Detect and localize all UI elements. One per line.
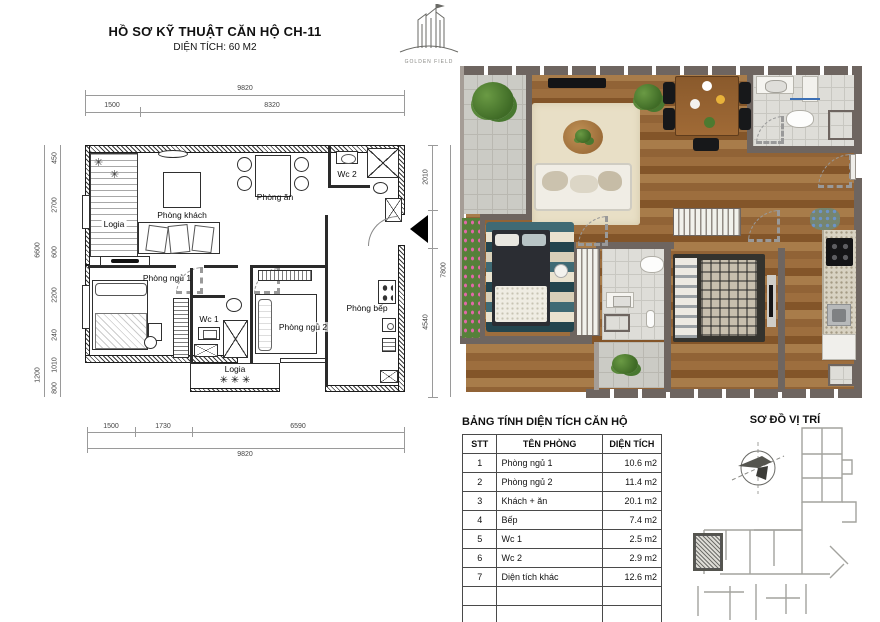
- wall-segment: [398, 245, 405, 392]
- dim-line: [432, 145, 433, 397]
- table-row-empty: [463, 587, 662, 606]
- wall-segment: [325, 385, 405, 392]
- dining-chair: [739, 108, 751, 130]
- wall-segment: [280, 358, 328, 363]
- dim-label: 1010: [52, 357, 59, 373]
- brand-name: GOLDEN FIELD: [396, 59, 462, 65]
- cell-stt: 5: [463, 530, 497, 549]
- cell-area: 20.1 m2: [602, 492, 661, 511]
- dining-chair: [663, 82, 675, 104]
- dim-label: 8320: [264, 102, 280, 109]
- dining-chair: [237, 157, 252, 172]
- dim-tick: [135, 427, 136, 437]
- cell-stt: 3: [463, 492, 497, 511]
- dim-line: [85, 112, 405, 113]
- area-table-block: BẢNG TÍNH DIỆN TÍCH CĂN HỘ STT TÊN PHÒNG…: [462, 416, 662, 622]
- shaft-xbox: [194, 344, 218, 357]
- towel-bar: [790, 98, 820, 100]
- room-label-kitchen: Phòng bếp: [346, 303, 387, 313]
- cell-name: Wc 2: [497, 549, 602, 568]
- wall-segment: [460, 66, 862, 75]
- cell-area: 2.9 m2: [602, 549, 661, 568]
- dining-chair: [693, 138, 719, 151]
- page-subtitle: DIỆN TÍCH: 60 M2: [95, 42, 335, 53]
- dim-label: 2200: [52, 287, 59, 303]
- dim-line: [85, 95, 405, 96]
- window: [82, 195, 90, 229]
- tv-panel: [767, 275, 776, 327]
- dining-table: [675, 76, 739, 136]
- cell-stt: 1: [463, 454, 497, 473]
- dim-label: 450: [52, 152, 59, 164]
- shaft-xbox: [380, 370, 398, 383]
- cell-area: 12.6 m2: [602, 568, 661, 587]
- dim-label: 2700: [52, 197, 59, 213]
- cell-name: Bếp: [497, 511, 602, 530]
- wardrobe: [576, 248, 600, 336]
- dim-label-right-total: 7800: [441, 262, 448, 278]
- dining-chair: [294, 176, 309, 191]
- floorplan-sheet: HỒ SƠ KỸ THUẬT CĂN HỘ CH-11 DIỆN TÍCH: 6…: [0, 0, 880, 622]
- wc1-sink: [606, 292, 634, 308]
- col-header-area: DIỆN TÍCH: [602, 435, 661, 454]
- dim-line: [450, 145, 451, 397]
- dim-label: 6590: [290, 423, 306, 430]
- building-outline: [690, 416, 878, 620]
- cell-area: 2.5 m2: [602, 530, 661, 549]
- dim-label: 1500: [103, 423, 119, 430]
- dim-label: 1200: [35, 367, 42, 383]
- shaft-xbox: [367, 148, 399, 178]
- logia2-plant: [612, 354, 638, 374]
- plant-symbol: ✳: [94, 156, 103, 169]
- wall-segment: [190, 388, 280, 392]
- shaft-xbox: [828, 364, 854, 386]
- wc2-sink: [756, 76, 794, 94]
- indoor-plant: [634, 84, 662, 110]
- dim-tick: [428, 210, 438, 211]
- dim-label-left-total: 6600: [35, 242, 42, 258]
- plant-symbol: ✳: [110, 168, 119, 181]
- wall-segment: [586, 389, 862, 398]
- wall-segment: [664, 242, 671, 392]
- technical-floor-plan: 9820 1500 8320 1500 1730 6590 9820 2010 …: [30, 80, 462, 472]
- col-header-name: TÊN PHÒNG: [497, 435, 602, 454]
- kitchen-sink: [382, 318, 396, 332]
- balcony-plant: [472, 82, 514, 120]
- dim-tick: [428, 397, 438, 398]
- dim-tick: [404, 90, 405, 116]
- col-header-stt: STT: [463, 435, 497, 454]
- dim-tick: [85, 90, 86, 116]
- wc2-sink: [336, 151, 358, 164]
- dim-tick: [140, 107, 141, 117]
- cell-area: 11.4 m2: [602, 473, 661, 492]
- page-title: HỒ SƠ KỸ THUẬT CĂN HỘ CH-11: [95, 24, 335, 39]
- kitchen-plant: [810, 208, 840, 230]
- fan-symbol: [144, 336, 157, 349]
- shaft-xbox: [604, 314, 630, 332]
- room-label-bedroom1: Phòng ngủ 1: [143, 273, 191, 283]
- table-row-empty: [463, 606, 662, 622]
- wc1-bin: [646, 310, 655, 328]
- bedroom2-bed: [673, 254, 765, 342]
- title-block: HỒ SƠ KỸ THUẬT CĂN HỘ CH-11 DIỆN TÍCH: 6…: [95, 24, 335, 53]
- room-label-wc1: Wc 1: [199, 314, 218, 324]
- room-label-dining: Phòng ăn: [257, 192, 293, 202]
- hall-wardrobe: [673, 208, 741, 236]
- coffee-table: [563, 120, 603, 154]
- wall-segment: [193, 295, 225, 298]
- room-label-bedroom2: Phòng ngủ 2: [278, 322, 328, 332]
- table-row: 6 Wc 2 2.9 m2: [463, 549, 662, 568]
- wall-segment: [204, 265, 238, 268]
- highlighted-unit-ch11: [695, 535, 721, 569]
- dining-table: [255, 155, 291, 197]
- dim-label-bottom-total: 9820: [237, 451, 253, 458]
- entry-door-leaf: [850, 154, 856, 180]
- shaft-xbox: [828, 110, 854, 140]
- entry-door-arc: [368, 216, 398, 246]
- entry-arrow: [410, 215, 428, 243]
- kitchen-cabinet: [822, 334, 856, 360]
- sofa: [534, 163, 632, 211]
- wc1-sink: [198, 327, 220, 340]
- dim-label: 600: [52, 246, 59, 258]
- cell-name: Phòng ngủ 1: [497, 454, 602, 473]
- area-table-title: BẢNG TÍNH DIỆN TÍCH CĂN HỘ: [462, 416, 662, 428]
- cell-name: Phòng ngủ 2: [497, 473, 602, 492]
- table-header-row: STT TÊN PHÒNG DIỆN TÍCH: [463, 435, 662, 454]
- table-row: 2 Phòng ngủ 2 11.4 m2: [463, 473, 662, 492]
- dim-line: [87, 448, 405, 449]
- cell-stt: 2: [463, 473, 497, 492]
- dim-tick: [87, 427, 88, 453]
- bedroom1-bed: [492, 230, 550, 326]
- cell-name: Wc 1: [497, 530, 602, 549]
- wardrobe: [258, 270, 312, 281]
- location-map: SƠ ĐỒ VỊ TRÍ: [690, 412, 878, 620]
- dim-label: 240: [52, 329, 59, 341]
- wall-segment: [250, 265, 253, 363]
- building-logo-icon: [396, 4, 462, 54]
- ceiling-light: [158, 150, 188, 158]
- table-row: 5 Wc 1 2.5 m2: [463, 530, 662, 549]
- bedside-table: [554, 264, 568, 278]
- wall-segment: [480, 218, 485, 340]
- dim-label: 4540: [423, 314, 430, 330]
- coffee-table: [163, 172, 201, 208]
- dining-chair: [294, 157, 309, 172]
- cell-stt: 4: [463, 511, 497, 530]
- table-row: 1 Phòng ngủ 1 10.6 m2: [463, 454, 662, 473]
- dim-label: 1500: [104, 102, 120, 109]
- wall-segment: [250, 265, 325, 268]
- dim-label: 800: [52, 382, 59, 394]
- bedroom1-bed: [92, 280, 148, 350]
- window: [82, 285, 90, 329]
- dim-label: 1730: [155, 423, 171, 430]
- flower-planter: [462, 218, 480, 338]
- room-label-logia-top: Logia: [102, 219, 127, 229]
- wall-segment: [328, 185, 370, 188]
- room-label-living: Phòng khách: [157, 210, 207, 220]
- cell-stt: 6: [463, 549, 497, 568]
- kitchen-sink: [827, 304, 851, 326]
- wall-segment: [325, 215, 328, 387]
- dim-label: 2010: [423, 169, 430, 185]
- kitchen-appliance: [382, 338, 396, 352]
- brand-logo: GOLDEN FIELD: [396, 4, 462, 66]
- wall-segment: [854, 66, 862, 154]
- dining-chair: [739, 82, 751, 104]
- dim-line: [44, 145, 45, 397]
- wc2-toilet: [373, 182, 388, 194]
- wall-segment: [594, 342, 599, 390]
- room-label-logia-bottom: Logia: [223, 364, 248, 374]
- room-label-wc2: Wc 2: [337, 169, 356, 179]
- table-row: 7 Diện tích khác 12.6 m2: [463, 568, 662, 587]
- dining-chair: [663, 108, 675, 130]
- dim-tick: [192, 427, 193, 437]
- stove: [378, 280, 396, 304]
- wc1-toilet: [640, 256, 664, 273]
- wardrobe: [173, 298, 189, 358]
- dim-tick: [428, 145, 438, 146]
- dim-line: [60, 145, 61, 397]
- table-row: 4 Bếp 7.4 m2: [463, 511, 662, 530]
- area-table: STT TÊN PHÒNG DIỆN TÍCH 1 Phòng ngủ 1 10…: [462, 434, 662, 622]
- wall-segment: [328, 145, 331, 188]
- cooktop: [826, 238, 853, 266]
- plant-symbols: ✳ ✳ ✳: [220, 375, 251, 386]
- bedroom1-dresser: [100, 256, 150, 266]
- dining-chair: [237, 176, 252, 191]
- tv-console: [548, 78, 606, 88]
- sofa: [138, 222, 220, 254]
- dim-tick: [404, 427, 405, 453]
- render-floor-plan: [460, 58, 862, 410]
- table-row: 3 Khách + ăn 20.1 m2: [463, 492, 662, 511]
- wall-segment: [778, 248, 785, 392]
- shaft-xbox: [223, 320, 248, 358]
- cell-stt: 7: [463, 568, 497, 587]
- cell-area: 7.4 m2: [602, 511, 661, 530]
- wc1-toilet: [226, 298, 242, 312]
- wc2-toilet: [786, 110, 814, 128]
- cell-name: Khách + ăn: [497, 492, 602, 511]
- dim-tick: [428, 248, 438, 249]
- cell-area: 10.6 m2: [602, 454, 661, 473]
- wall-segment: [747, 146, 862, 153]
- dim-label-top-total: 9820: [237, 85, 253, 92]
- cell-name: Diện tích khác: [497, 568, 602, 587]
